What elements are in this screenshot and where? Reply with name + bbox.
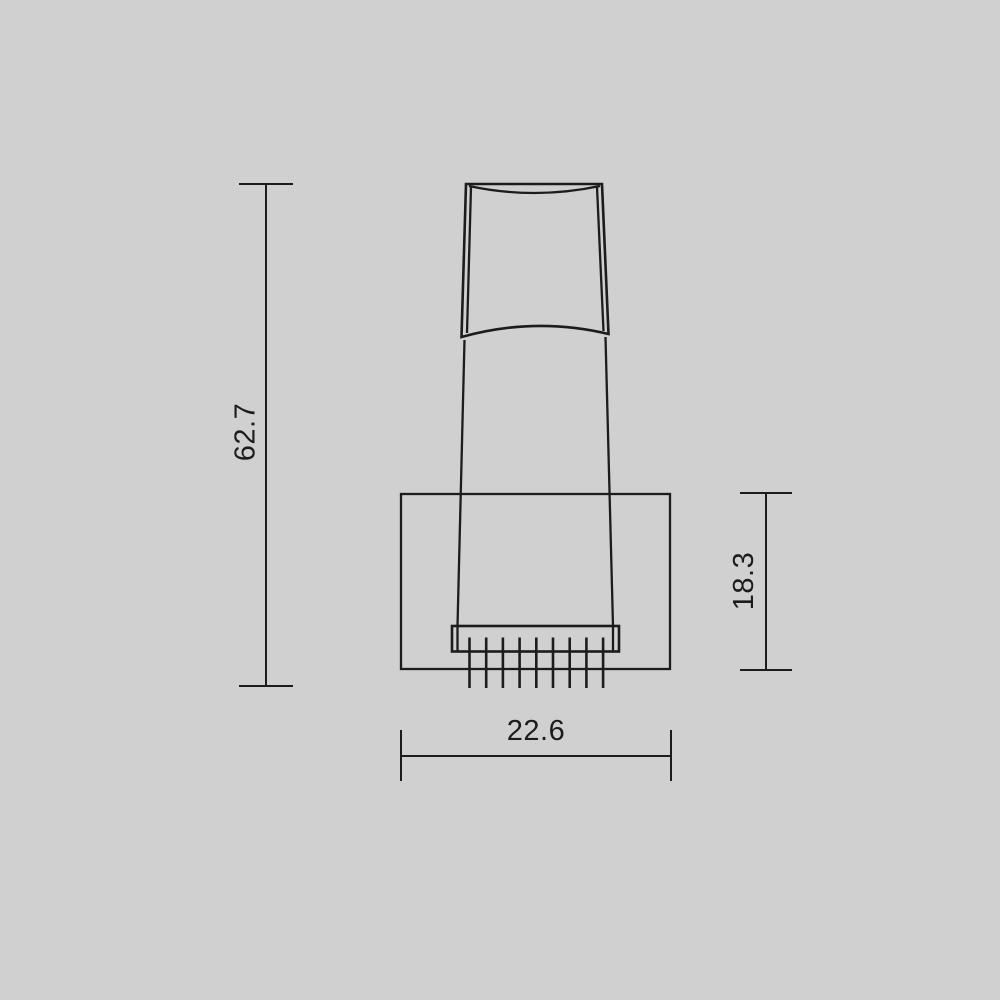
drawing-canvas: 62.7 18.3 22.6 xyxy=(0,0,1000,1000)
drawing-background xyxy=(0,0,1000,1000)
dimension-label-housing-height: 18.3 xyxy=(728,552,760,610)
technical-drawing-svg: 62.7 18.3 22.6 xyxy=(0,0,1000,1000)
dimension-label-housing-width: 22.6 xyxy=(507,715,565,747)
dimension-label-overall-height: 62.7 xyxy=(230,403,262,461)
